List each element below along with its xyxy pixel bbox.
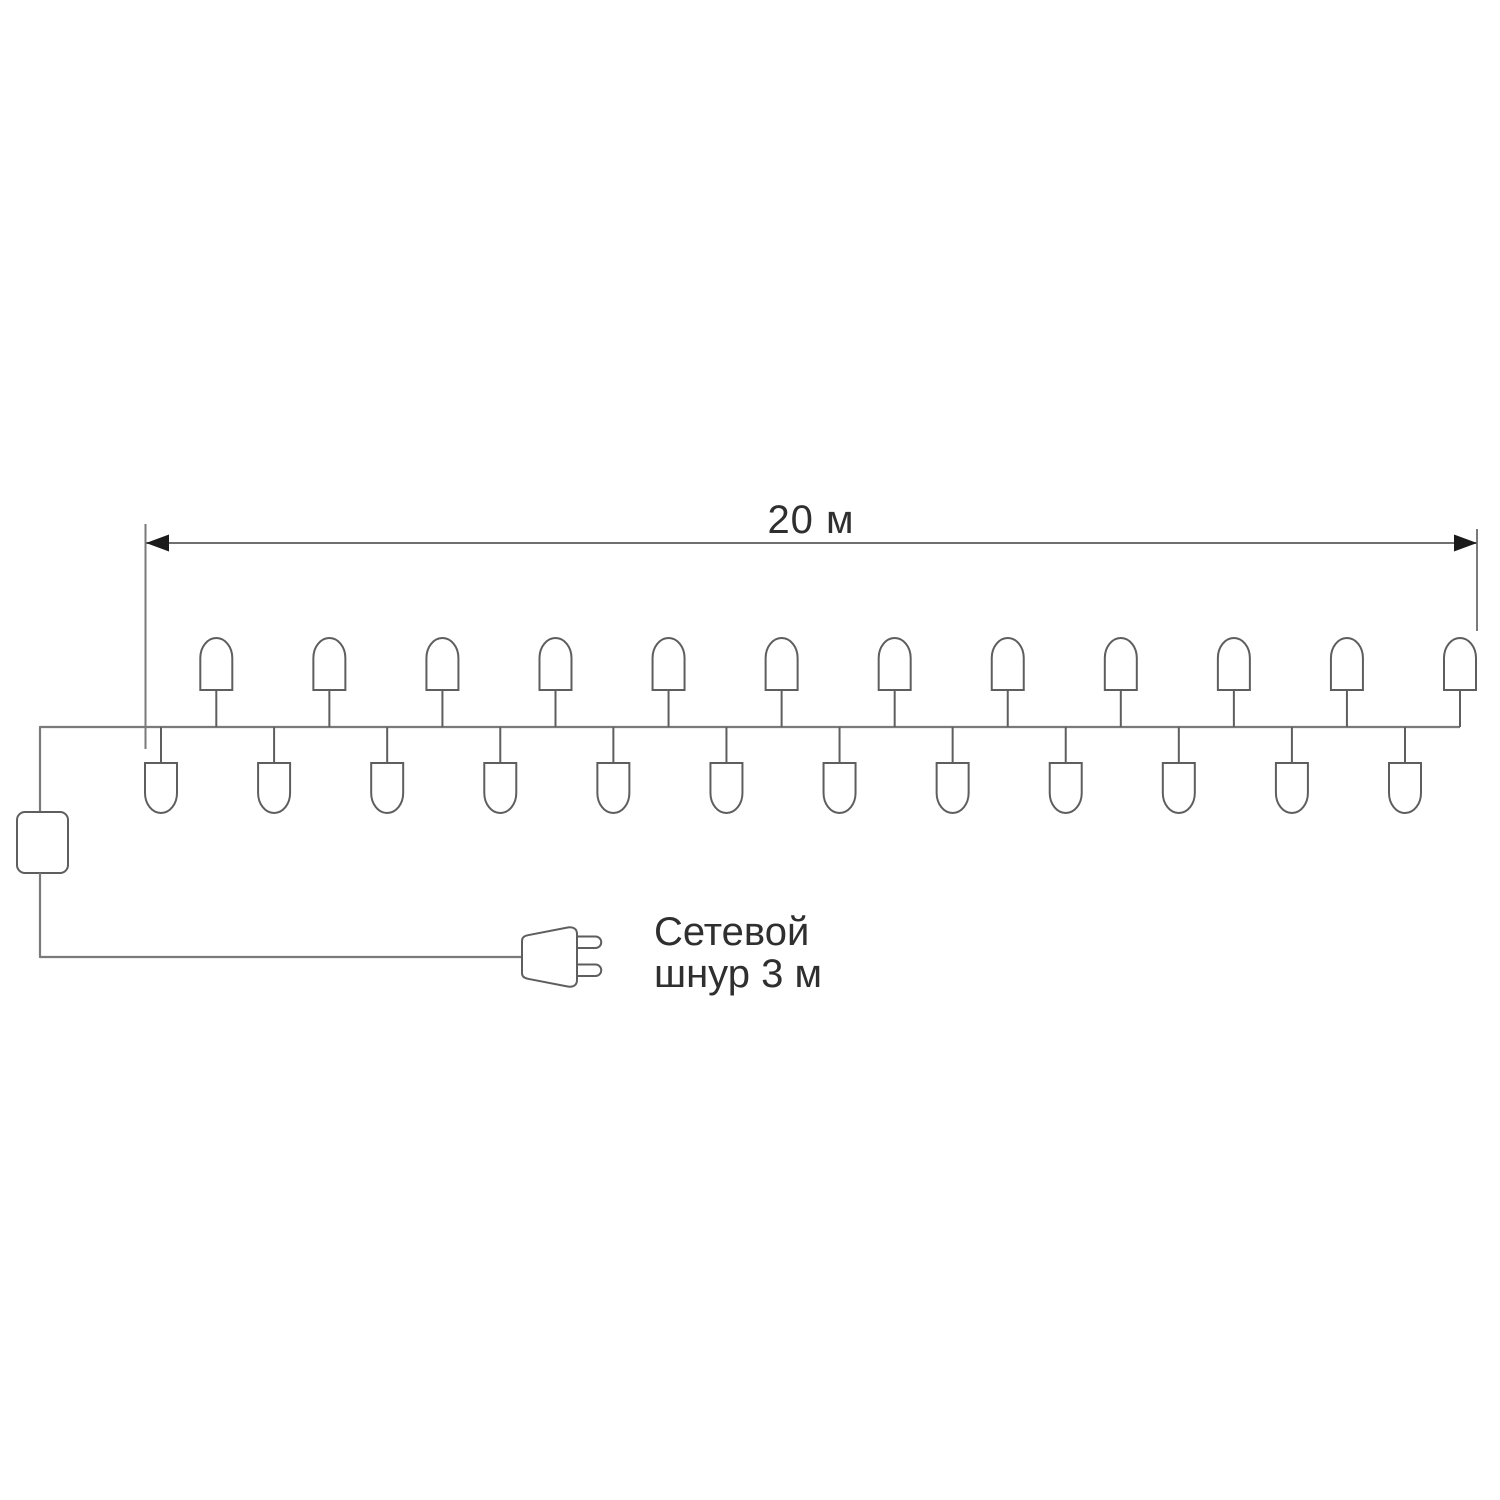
bottom-bulb bbox=[1050, 763, 1082, 813]
bottom-bulb bbox=[484, 763, 516, 813]
bottom-bulb bbox=[371, 763, 403, 813]
bottom-bulb bbox=[1163, 763, 1195, 813]
dimension-annotation: 20 м bbox=[146, 498, 1478, 749]
top-bulb bbox=[653, 638, 685, 690]
dimension-arrow-right-icon bbox=[1454, 535, 1477, 552]
top-bulb bbox=[313, 638, 345, 690]
plug-prong-bottom bbox=[578, 965, 601, 977]
top-bulb bbox=[1105, 638, 1137, 690]
bottom-bulb bbox=[1389, 763, 1421, 813]
controller-box bbox=[17, 812, 68, 873]
cord-label: Сетевой шнур 3 м bbox=[654, 910, 822, 996]
top-bulb bbox=[1218, 638, 1250, 690]
top-bulb bbox=[992, 638, 1024, 690]
main-wire bbox=[40, 727, 1460, 812]
top-bulb bbox=[766, 638, 798, 690]
bottom-bulb bbox=[710, 763, 742, 813]
bottom-bulb-row bbox=[145, 727, 1421, 813]
dimension-label: 20 м bbox=[767, 498, 854, 542]
power-plug-icon bbox=[522, 927, 601, 986]
bottom-bulb bbox=[1276, 763, 1308, 813]
plug-body bbox=[522, 927, 577, 986]
cord-label-line2: шнур 3 м bbox=[654, 952, 822, 996]
top-bulb bbox=[200, 638, 232, 690]
top-bulb bbox=[1444, 638, 1476, 690]
bottom-bulb bbox=[824, 763, 856, 813]
dimension-arrow-left-icon bbox=[146, 535, 169, 552]
cord-label-line1: Сетевой bbox=[654, 910, 809, 954]
bottom-bulb bbox=[145, 763, 177, 813]
plug-prong-top bbox=[578, 937, 601, 949]
top-bulb-row bbox=[200, 638, 1476, 727]
top-bulb bbox=[1331, 638, 1363, 690]
power-cord-wire bbox=[40, 873, 522, 957]
top-bulb bbox=[539, 638, 571, 690]
bottom-bulb bbox=[937, 763, 969, 813]
bottom-bulb bbox=[597, 763, 629, 813]
top-bulb bbox=[879, 638, 911, 690]
diagram-canvas: 20 м Сетевой шнур 3 м bbox=[0, 0, 1500, 1500]
bottom-bulb bbox=[258, 763, 290, 813]
garland-wiring-diagram: 20 м Сетевой шнур 3 м bbox=[0, 0, 1500, 1500]
top-bulb bbox=[426, 638, 458, 690]
